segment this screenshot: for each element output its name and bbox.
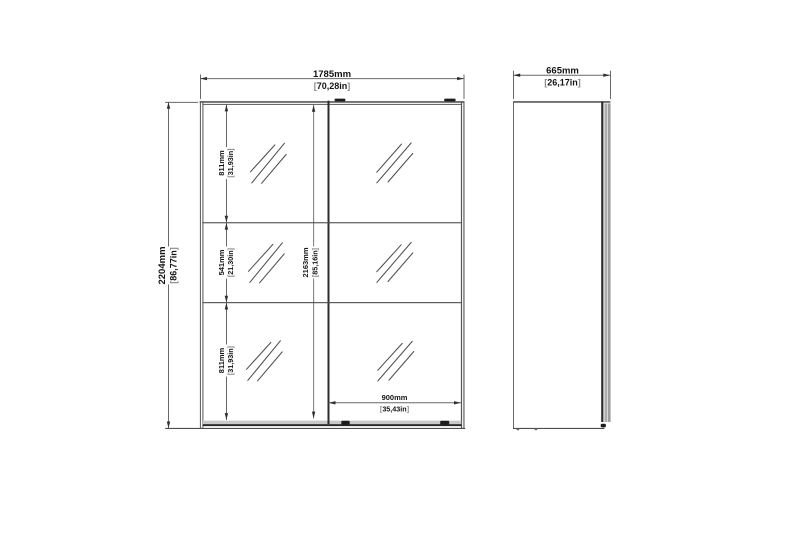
- svg-text:[21,30in]: [21,30in]: [226, 248, 235, 277]
- svg-text:[31,93in]: [31,93in]: [226, 346, 235, 375]
- svg-text:[85,16in]: [85,16in]: [310, 248, 319, 277]
- svg-text:900mm: 900mm: [382, 393, 408, 402]
- svg-text:[86,77in]: [86,77in]: [168, 247, 178, 284]
- svg-text:2163mm: 2163mm: [301, 247, 310, 277]
- svg-text:[35,43in]: [35,43in]: [380, 405, 409, 414]
- svg-text:[31,93in]: [31,93in]: [226, 148, 235, 177]
- svg-text:[70,28in]: [70,28in]: [314, 81, 351, 91]
- svg-text:[26,17in]: [26,17in]: [544, 78, 581, 88]
- svg-text:665mm: 665mm: [546, 65, 579, 76]
- svg-text:2204mm: 2204mm: [157, 246, 168, 284]
- svg-text:1785mm: 1785mm: [313, 69, 351, 80]
